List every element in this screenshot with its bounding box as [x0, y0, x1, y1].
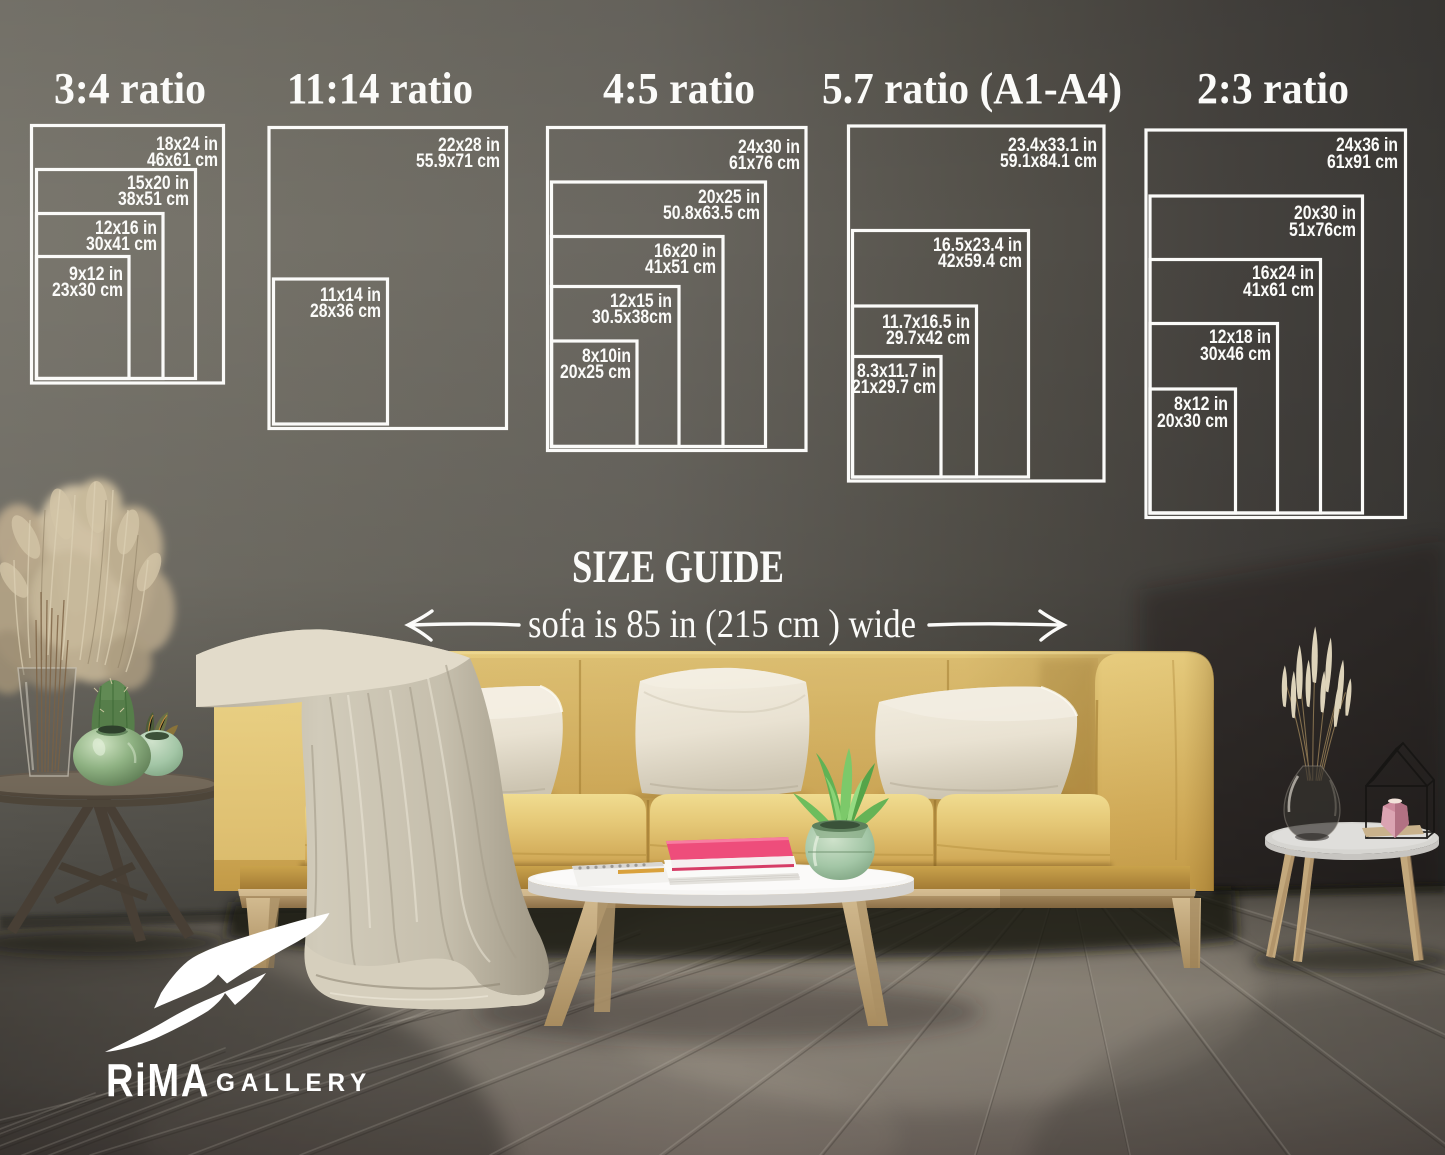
- svg-text:20x25 cm: 20x25 cm: [560, 361, 631, 383]
- svg-text:GALLERY: GALLERY: [216, 1069, 372, 1097]
- svg-text:50.8x63.5 cm: 50.8x63.5 cm: [663, 202, 760, 224]
- svg-text:11:14 ratio: 11:14 ratio: [287, 64, 473, 113]
- svg-text:RiMA: RiMA: [106, 1054, 210, 1106]
- svg-text:5.7 ratio (A1-A4): 5.7 ratio (A1-A4): [822, 64, 1122, 113]
- svg-text:41x51 cm: 41x51 cm: [645, 256, 716, 278]
- svg-text:38x51 cm: 38x51 cm: [118, 188, 189, 210]
- svg-text:61x76 cm: 61x76 cm: [729, 152, 800, 174]
- svg-text:2:3 ratio: 2:3 ratio: [1197, 64, 1349, 113]
- svg-text:61x91 cm: 61x91 cm: [1327, 151, 1398, 173]
- svg-text:23x30 cm: 23x30 cm: [52, 279, 123, 301]
- svg-text:42x59.4 cm: 42x59.4 cm: [938, 250, 1022, 272]
- svg-text:55.9x71 cm: 55.9x71 cm: [416, 150, 500, 172]
- svg-text:30.5x38cm: 30.5x38cm: [592, 306, 672, 328]
- svg-text:41x61 cm: 41x61 cm: [1243, 279, 1314, 301]
- svg-text:59.1x84.1 cm: 59.1x84.1 cm: [1000, 150, 1097, 172]
- svg-text:28x36 cm: 28x36 cm: [310, 300, 381, 322]
- svg-text:SIZE GUIDE: SIZE GUIDE: [572, 541, 784, 593]
- svg-text:30x46 cm: 30x46 cm: [1200, 343, 1271, 365]
- svg-text:29.7x42 cm: 29.7x42 cm: [886, 327, 970, 349]
- svg-text:21x29.7 cm: 21x29.7 cm: [852, 376, 936, 398]
- svg-text:3:4 ratio: 3:4 ratio: [54, 64, 206, 113]
- svg-text:sofa is 85 in (215 cm ) wide: sofa is 85 in (215 cm ) wide: [528, 601, 916, 646]
- svg-text:20x30 cm: 20x30 cm: [1157, 410, 1228, 432]
- svg-text:4:5 ratio: 4:5 ratio: [603, 64, 755, 113]
- svg-text:46x61 cm: 46x61 cm: [147, 149, 218, 171]
- svg-text:30x41 cm: 30x41 cm: [86, 233, 157, 255]
- svg-text:51x76cm: 51x76cm: [1289, 219, 1356, 241]
